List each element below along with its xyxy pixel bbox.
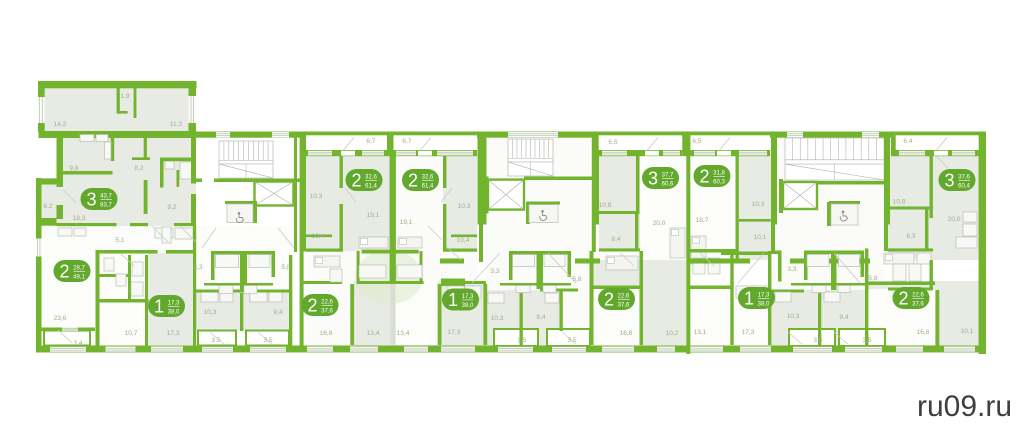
svg-text:31,8: 31,8: [713, 171, 725, 177]
svg-text:6,5: 6,5: [692, 138, 701, 145]
svg-text:3,5: 3,5: [211, 337, 220, 344]
svg-text:13,1: 13,1: [694, 329, 707, 336]
svg-text:18,3: 18,3: [73, 215, 86, 222]
svg-text:2: 2: [898, 289, 908, 309]
svg-text:2: 2: [351, 171, 361, 191]
svg-text:28,7: 28,7: [73, 266, 85, 272]
svg-text:10,7: 10,7: [125, 330, 138, 337]
svg-text:17,3: 17,3: [742, 329, 755, 336]
svg-text:10,8: 10,8: [893, 199, 906, 206]
svg-text:9,4: 9,4: [839, 314, 848, 321]
svg-text:10,4: 10,4: [457, 237, 470, 244]
svg-text:14,2: 14,2: [54, 121, 67, 128]
svg-text:37,6: 37,6: [321, 308, 333, 314]
svg-text:37,6: 37,6: [958, 175, 970, 181]
svg-text:37,7: 37,7: [662, 173, 674, 179]
svg-text:10,3: 10,3: [458, 203, 471, 210]
svg-text:49,1: 49,1: [73, 274, 85, 280]
svg-text:6,5: 6,5: [608, 139, 617, 146]
svg-text:61,4: 61,4: [365, 183, 377, 189]
svg-text:3,5: 3,5: [517, 337, 526, 344]
svg-text:37,6: 37,6: [912, 301, 924, 307]
svg-text:17,3: 17,3: [462, 294, 474, 300]
svg-text:13,4: 13,4: [397, 330, 410, 337]
svg-text:8,2: 8,2: [134, 165, 143, 172]
svg-text:16,8: 16,8: [320, 330, 333, 337]
svg-text:3,3: 3,3: [490, 268, 499, 275]
svg-text:10,4: 10,4: [312, 233, 325, 240]
svg-text:2: 2: [699, 167, 709, 187]
svg-text:3: 3: [86, 190, 96, 210]
svg-text:20,0: 20,0: [653, 220, 666, 227]
svg-text:61,4: 61,4: [422, 183, 434, 189]
svg-text:20,0: 20,0: [948, 216, 961, 223]
svg-text:2: 2: [59, 262, 69, 282]
svg-text:2: 2: [604, 290, 614, 310]
svg-text:6,7: 6,7: [402, 138, 411, 145]
svg-text:5,8: 5,8: [868, 275, 877, 282]
svg-text:1,9: 1,9: [120, 93, 129, 100]
svg-text:18,7: 18,7: [696, 217, 709, 224]
svg-text:9,2: 9,2: [167, 204, 176, 211]
svg-text:22,6: 22,6: [321, 300, 333, 306]
svg-text:22,6: 22,6: [618, 294, 630, 300]
svg-text:3,5: 3,5: [862, 337, 871, 344]
svg-text:16,8: 16,8: [917, 329, 930, 336]
svg-text:3: 3: [944, 171, 954, 191]
svg-text:10,3: 10,3: [787, 313, 800, 320]
svg-text:3,3: 3,3: [787, 266, 796, 273]
svg-text:2: 2: [408, 171, 418, 191]
svg-text:60,6: 60,6: [662, 181, 674, 187]
svg-text:9,4: 9,4: [536, 314, 545, 321]
svg-text:60,3: 60,3: [713, 179, 725, 185]
svg-text:10,2: 10,2: [666, 330, 679, 337]
svg-text:83,7: 83,7: [100, 202, 112, 208]
svg-text:10,3: 10,3: [491, 315, 504, 322]
svg-text:37,6: 37,6: [618, 302, 630, 308]
svg-text:38,0: 38,0: [168, 309, 180, 315]
svg-text:17,3: 17,3: [168, 301, 180, 307]
svg-text:10,1: 10,1: [961, 328, 974, 335]
svg-text:6,2: 6,2: [43, 203, 52, 210]
svg-text:5,8: 5,8: [572, 276, 581, 283]
svg-text:8,4: 8,4: [611, 236, 620, 243]
svg-text:19,1: 19,1: [367, 212, 380, 219]
svg-text:ru09.ru: ru09.ru: [917, 390, 1012, 423]
svg-text:10,3: 10,3: [310, 193, 323, 200]
svg-text:6,4: 6,4: [903, 138, 912, 145]
svg-text:11,2: 11,2: [170, 121, 183, 128]
svg-text:17,3: 17,3: [758, 293, 770, 299]
svg-text:1: 1: [744, 289, 754, 309]
svg-text:6,7: 6,7: [366, 138, 375, 145]
svg-text:43,7: 43,7: [100, 194, 112, 200]
svg-text:32,6: 32,6: [365, 175, 377, 181]
svg-text:3,4: 3,4: [73, 340, 82, 347]
svg-text:1: 1: [448, 290, 458, 310]
svg-text:17,3: 17,3: [448, 329, 461, 336]
svg-text:38,0: 38,0: [462, 303, 474, 309]
svg-text:32,6: 32,6: [422, 175, 434, 181]
svg-text:5,1: 5,1: [115, 237, 124, 244]
svg-text:13,4: 13,4: [367, 330, 380, 337]
svg-text:3,5: 3,5: [813, 337, 822, 344]
svg-text:16,8: 16,8: [620, 330, 633, 337]
svg-text:10,3: 10,3: [752, 201, 765, 208]
svg-text:60,4: 60,4: [958, 183, 970, 189]
svg-text:23,6: 23,6: [54, 315, 67, 322]
svg-text:10,1: 10,1: [754, 234, 767, 241]
svg-text:9,4: 9,4: [273, 309, 282, 316]
svg-text:2: 2: [307, 296, 317, 316]
svg-text:3,3: 3,3: [193, 264, 202, 271]
svg-text:3: 3: [648, 169, 658, 189]
svg-text:3,5: 3,5: [567, 337, 576, 344]
svg-text:5,8: 5,8: [281, 264, 290, 271]
svg-text:10,8: 10,8: [599, 202, 612, 209]
svg-text:10,3: 10,3: [204, 309, 217, 316]
svg-text:8,3: 8,3: [906, 233, 915, 240]
svg-text:1: 1: [154, 297, 164, 317]
svg-text:9,8: 9,8: [69, 165, 78, 172]
svg-text:38,0: 38,0: [758, 301, 770, 307]
svg-text:17,3: 17,3: [167, 330, 180, 337]
svg-text:3,5: 3,5: [263, 337, 272, 344]
svg-text:19,1: 19,1: [400, 219, 413, 226]
svg-text:22,6: 22,6: [912, 293, 924, 299]
